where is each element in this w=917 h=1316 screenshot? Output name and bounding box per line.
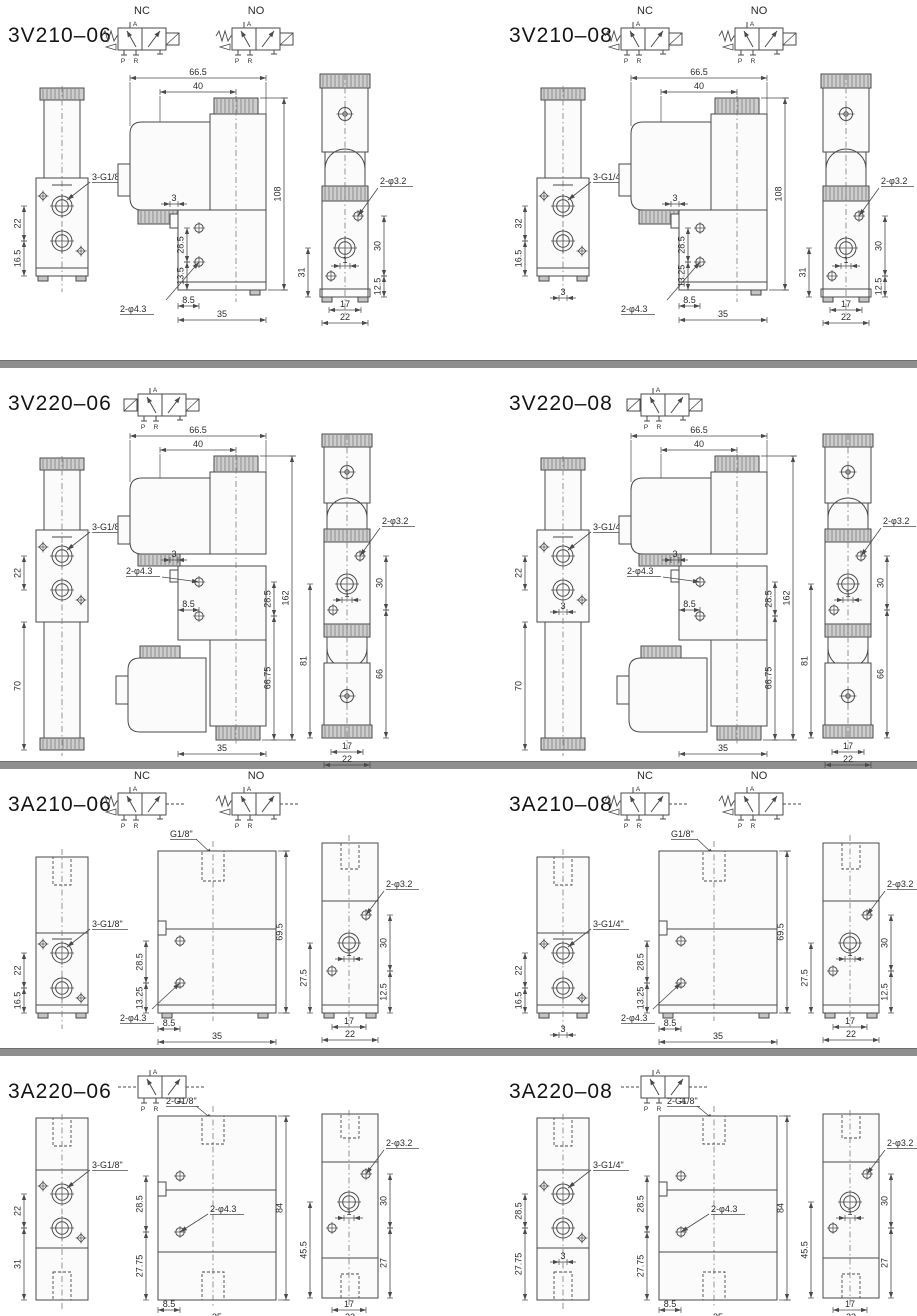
section-3a210-06: 3A210–06 NCNOAPRAPR 2216.53-G1/8"G1/8"28… bbox=[0, 769, 458, 1048]
dim-label: 31 bbox=[13, 1259, 23, 1269]
dimension-views: 2216.53-G1/8"66.540328.513.52-φ4.38.5351… bbox=[0, 0, 458, 360]
dim-label: 12.5 bbox=[379, 983, 389, 1001]
dim-label: 30 bbox=[379, 938, 389, 948]
dim-label: 12.5 bbox=[874, 278, 884, 296]
dim-label: 3 bbox=[171, 193, 176, 203]
front-view-drawing: G1/8"28.513.252-φ4.38.53569.5 bbox=[617, 825, 812, 1051]
hole-label: 2-φ3.2 bbox=[382, 516, 408, 526]
dim-label: 40 bbox=[694, 439, 704, 449]
dim-label: 40 bbox=[694, 81, 704, 91]
dim-label: 28.5 bbox=[263, 590, 273, 608]
dim-label: 8.5 bbox=[182, 599, 195, 609]
end-view-drawing: 2-φ3.2127.53012.51722 bbox=[292, 835, 427, 1051]
hole-label: 2-φ3.2 bbox=[887, 1138, 913, 1148]
dim-label: 66.5 bbox=[690, 425, 708, 435]
dim-label: 30 bbox=[880, 1196, 890, 1206]
dim-label: 31 bbox=[297, 267, 307, 277]
dim-label: 162 bbox=[281, 590, 291, 605]
section-3v210-08: 3V210–08 NCNOAPRAPR 3216.53-G1/4"366.540… bbox=[459, 0, 917, 360]
hole-label: 2-φ3.2 bbox=[386, 879, 412, 889]
dim-label: 3 bbox=[171, 549, 176, 559]
top-thread-label: 2-G1/8" bbox=[166, 1096, 197, 1106]
front-view-drawing: 2-G1/8"28.527.752-φ4.38.53584 bbox=[617, 1094, 812, 1316]
dim-label: 22 bbox=[514, 965, 524, 975]
dim-label: 8.5 bbox=[182, 295, 195, 305]
dim-label: 35 bbox=[718, 309, 728, 319]
front-view-drawing: 66.540328.513.252-φ4.38.535108 bbox=[615, 66, 810, 336]
dim-label: 22 bbox=[13, 568, 23, 578]
dim-label: 8.5 bbox=[163, 1018, 176, 1028]
front-view-drawing: 66.54032-φ4.38.528.566.7516235 bbox=[114, 424, 314, 764]
section-3a210-08: 3A210–08 NCNOAPRAPR 2216.53-G1/4"3G1/8"2… bbox=[459, 769, 917, 1048]
dim-label: 66 bbox=[876, 669, 886, 679]
hole-label: 2-φ4.3 bbox=[711, 1204, 737, 1214]
dim-label: 30 bbox=[375, 578, 385, 588]
dim-label: 69.5 bbox=[275, 923, 285, 941]
top-thread-label: G1/8" bbox=[170, 829, 193, 839]
dim-label: 32 bbox=[514, 218, 524, 228]
dim-label: 66.5 bbox=[189, 425, 207, 435]
dim-label: 66.5 bbox=[189, 67, 207, 77]
dim-label: 17 bbox=[344, 1299, 354, 1309]
end-view-drawing: 2-φ3.21313012.51722 bbox=[793, 74, 917, 336]
front-view-drawing: 66.540328.513.52-φ4.38.535108 bbox=[114, 66, 309, 336]
dim-label: 8.5 bbox=[683, 599, 696, 609]
dim-label: 22 bbox=[340, 312, 350, 322]
dim-label: 8.5 bbox=[163, 1299, 176, 1309]
dim-label: 8.5 bbox=[664, 1299, 677, 1309]
front-view-drawing: G1/8"28.513.252-φ4.38.53569.5 bbox=[116, 825, 311, 1051]
dim-label: 108 bbox=[774, 186, 784, 201]
dimension-views: 22703-G1/4"366.54032-φ4.38.528.566.75162… bbox=[459, 368, 917, 761]
dim-label: 31 bbox=[798, 267, 808, 277]
dim-label: 28.5 bbox=[176, 236, 186, 254]
row-3a210: 3A210–06 NCNOAPRAPR 2216.53-G1/8"G1/8"28… bbox=[0, 769, 917, 1048]
dim-label: 22 bbox=[841, 312, 851, 322]
dimension-views: 22313-G1/8"2-G1/8"28.527.752-φ4.38.53584… bbox=[0, 1056, 458, 1316]
dim-label: 28.5 bbox=[677, 236, 687, 254]
dimension-views: 22703-G1/8"66.54032-φ4.38.528.566.751623… bbox=[0, 368, 458, 761]
dim-label: 16.5 bbox=[13, 992, 23, 1010]
hole-label: 2-φ3.2 bbox=[887, 879, 913, 889]
dim-label: 13.25 bbox=[636, 987, 646, 1010]
dim-label: 108 bbox=[273, 186, 283, 201]
dim-label: 35 bbox=[713, 1312, 723, 1316]
dim-label: 27.75 bbox=[636, 1255, 646, 1278]
dim-label: 17 bbox=[845, 1016, 855, 1026]
dim-label: 16.5 bbox=[13, 250, 23, 268]
dim-label: 8.5 bbox=[683, 295, 696, 305]
section-divider bbox=[0, 360, 917, 368]
dim-label: 22 bbox=[846, 1029, 856, 1039]
dim-label: 16.5 bbox=[514, 250, 524, 268]
dim-label: 17 bbox=[841, 299, 851, 309]
dim-label: 3 bbox=[560, 287, 565, 297]
dim-label: 8.5 bbox=[664, 1018, 677, 1028]
dim-label: 3 bbox=[560, 601, 565, 611]
hole-label: 2-φ4.3 bbox=[627, 566, 653, 576]
top-thread-label: G1/8" bbox=[671, 829, 694, 839]
section-3v220-08: 3V220–08 APR 22703-G1/4"366.54032-φ4.38.… bbox=[459, 368, 917, 761]
dim-label: 28.5 bbox=[764, 590, 774, 608]
dim-label: 35 bbox=[713, 1031, 723, 1041]
hole-label: 2-φ3.2 bbox=[883, 516, 909, 526]
dim-label: 35 bbox=[212, 1312, 222, 1316]
dim-label: 40 bbox=[193, 439, 203, 449]
dim-label: 3 bbox=[560, 1024, 565, 1034]
dim-label: 28.5 bbox=[636, 1195, 646, 1213]
dim-label: 3 bbox=[560, 1251, 565, 1261]
row-3v210: 3V210–06 NCNOAPRAPR 2216.53-G1/8"66.5403… bbox=[0, 0, 917, 360]
dim-label: 66.75 bbox=[263, 667, 273, 690]
dim-label: 69.5 bbox=[776, 923, 786, 941]
dim-label: 66 bbox=[375, 669, 385, 679]
hole-label: 2-φ4.3 bbox=[120, 304, 146, 314]
dimension-views: 3216.53-G1/4"366.540328.513.252-φ4.38.53… bbox=[459, 0, 917, 360]
section-3a220-08: 3A220–08 APR 28.527.753-G1/4"32-G1/8"28.… bbox=[459, 1056, 917, 1316]
dim-label: 22 bbox=[345, 1312, 355, 1316]
dim-label: 84 bbox=[275, 1203, 285, 1213]
dim-label: 66.5 bbox=[690, 67, 708, 77]
dim-label: 1 bbox=[342, 255, 347, 265]
hole-label: 2-φ3.2 bbox=[881, 176, 907, 186]
dim-label: 27 bbox=[880, 1258, 890, 1268]
dim-label: 22 bbox=[514, 568, 524, 578]
dim-label: 70 bbox=[514, 681, 524, 691]
dim-label: 81 bbox=[299, 656, 309, 666]
dim-label: 27.75 bbox=[514, 1253, 524, 1276]
dim-label: 22 bbox=[13, 1206, 23, 1216]
dim-label: 30 bbox=[880, 938, 890, 948]
dimension-views: 2216.53-G1/8"G1/8"28.513.252-φ4.38.53569… bbox=[0, 769, 458, 1048]
section-3a220-06: 3A220–06 APR 22313-G1/8"2-G1/8"28.527.75… bbox=[0, 1056, 458, 1316]
hole-label: 2-φ4.3 bbox=[120, 1013, 146, 1023]
dim-label: 28.5 bbox=[636, 953, 646, 971]
dim-label: 17 bbox=[845, 1299, 855, 1309]
dim-label: 3 bbox=[672, 193, 677, 203]
dim-label: 16.5 bbox=[514, 992, 524, 1010]
dim-label: 22 bbox=[13, 965, 23, 975]
end-view-drawing: 2-φ3.218130661722 bbox=[294, 434, 424, 774]
dim-label: 22 bbox=[13, 218, 23, 228]
dim-label: 27 bbox=[379, 1258, 389, 1268]
dim-label: 81 bbox=[800, 656, 810, 666]
hole-label: 2-φ4.3 bbox=[126, 566, 152, 576]
dim-label: 30 bbox=[876, 578, 886, 588]
dim-label: 22 bbox=[342, 754, 352, 764]
dim-label: 35 bbox=[217, 743, 227, 753]
dim-label: 162 bbox=[782, 590, 792, 605]
hole-label: 2-φ3.2 bbox=[380, 176, 406, 186]
end-view-drawing: 2-φ3.21313012.51722 bbox=[292, 74, 422, 336]
dim-label: 66.75 bbox=[764, 667, 774, 690]
row-3v220: 3V220–06 APR 22703-G1/8"66.54032-φ4.38.5… bbox=[0, 368, 917, 761]
dim-label: 45.5 bbox=[800, 1241, 810, 1259]
dim-label: 27.5 bbox=[800, 969, 810, 987]
dim-label: 35 bbox=[718, 743, 728, 753]
pneumatic-valve-dimension-sheet: 3V210–06 NCNOAPRAPR 2216.53-G1/8"66.5403… bbox=[0, 0, 917, 1316]
front-view-drawing: 66.54032-φ4.38.528.566.7516235 bbox=[615, 424, 815, 764]
dim-label: 22 bbox=[843, 754, 853, 764]
end-view-drawing: 2-φ3.218130661722 bbox=[795, 434, 917, 774]
front-view-drawing: 2-G1/8"28.527.752-φ4.38.53584 bbox=[116, 1094, 311, 1316]
dim-label: 13.5 bbox=[176, 267, 186, 285]
dim-label: 84 bbox=[776, 1203, 786, 1213]
dim-label: 45.5 bbox=[299, 1241, 309, 1259]
dim-label: 27.5 bbox=[299, 969, 309, 987]
dim-label: 22 bbox=[345, 1029, 355, 1039]
dim-label: 27.75 bbox=[135, 1255, 145, 1278]
end-view-drawing: 2-φ3.2127.53012.51722 bbox=[793, 835, 917, 1051]
hole-label: 2-φ3.2 bbox=[386, 1138, 412, 1148]
dim-label: 28.5 bbox=[514, 1202, 524, 1220]
dimension-views: 2216.53-G1/4"3G1/8"28.513.252-φ4.38.5356… bbox=[459, 769, 917, 1048]
dim-label: 28.5 bbox=[135, 953, 145, 971]
dim-label: 30 bbox=[373, 241, 383, 251]
dim-label: 40 bbox=[193, 81, 203, 91]
dim-label: 17 bbox=[344, 1016, 354, 1026]
dim-label: 30 bbox=[379, 1196, 389, 1206]
dim-label: 28.5 bbox=[135, 1195, 145, 1213]
dim-label: 17 bbox=[342, 741, 352, 751]
dim-label: 22 bbox=[846, 1312, 856, 1316]
dim-label: 17 bbox=[340, 299, 350, 309]
dim-label: 12.5 bbox=[880, 983, 890, 1001]
section-3v210-06: 3V210–06 NCNOAPRAPR 2216.53-G1/8"66.5403… bbox=[0, 0, 458, 360]
end-view-drawing: 2-φ3.2145.530271722 bbox=[793, 1110, 917, 1316]
row-3a220: 3A220–06 APR 22313-G1/8"2-G1/8"28.527.75… bbox=[0, 1056, 917, 1316]
dim-label: 35 bbox=[212, 1031, 222, 1041]
dimension-views: 28.527.753-G1/4"32-G1/8"28.527.752-φ4.38… bbox=[459, 1056, 917, 1316]
dim-label: 30 bbox=[874, 241, 884, 251]
dim-label: 35 bbox=[217, 309, 227, 319]
hole-label: 2-φ4.3 bbox=[210, 1204, 236, 1214]
section-3v220-06: 3V220–06 APR 22703-G1/8"66.54032-φ4.38.5… bbox=[0, 368, 458, 761]
hole-label: 2-φ4.3 bbox=[621, 1013, 647, 1023]
dim-label: 13.25 bbox=[135, 987, 145, 1010]
top-thread-label: 2-G1/8" bbox=[667, 1096, 698, 1106]
dim-label: 70 bbox=[13, 681, 23, 691]
dim-label: 17 bbox=[843, 741, 853, 751]
hole-label: 2-φ4.3 bbox=[621, 304, 647, 314]
dim-label: 1 bbox=[843, 255, 848, 265]
end-view-drawing: 2-φ3.2145.530271722 bbox=[292, 1110, 427, 1316]
dim-label: 12.5 bbox=[373, 278, 383, 296]
dim-label: 3 bbox=[672, 549, 677, 559]
